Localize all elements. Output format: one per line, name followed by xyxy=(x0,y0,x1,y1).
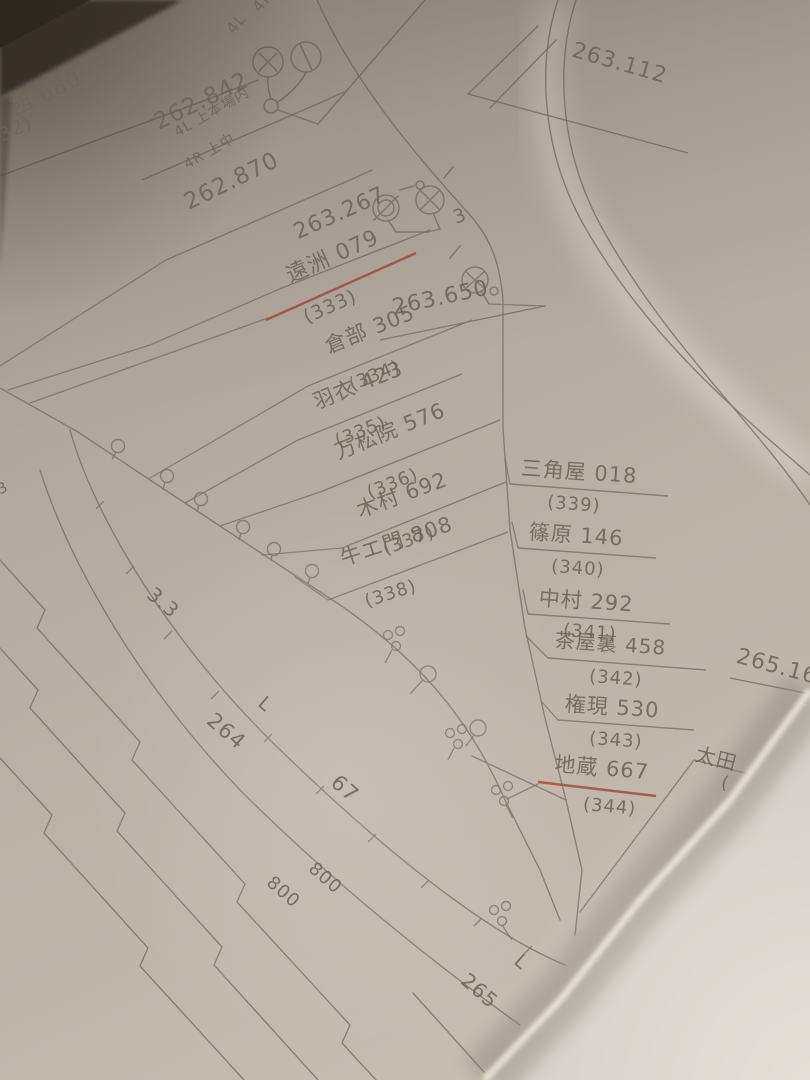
crossing-number-342: (342) xyxy=(589,666,644,691)
crossing-number-339: (339) xyxy=(547,492,602,517)
crossing-number-343: (343) xyxy=(589,728,644,753)
photographed-diagram-page: 西 680 (332) 262.842 4R 4L 4L 上本場内 4R 上中 … xyxy=(0,0,810,1080)
crossing-number-340: (340) xyxy=(551,556,606,581)
